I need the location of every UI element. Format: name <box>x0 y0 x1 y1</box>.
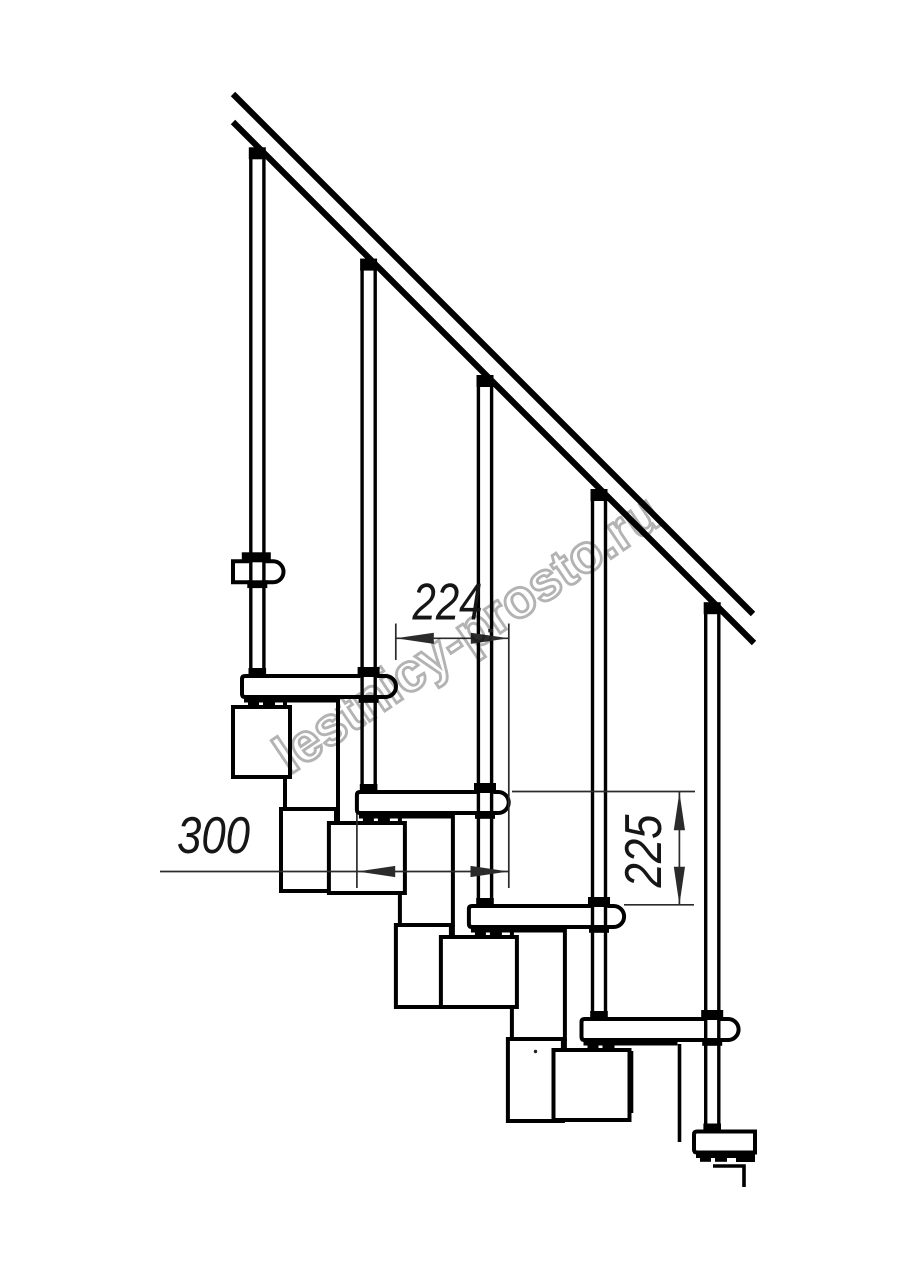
svg-text:300: 300 <box>177 807 250 865</box>
svg-text:225: 225 <box>615 814 673 889</box>
